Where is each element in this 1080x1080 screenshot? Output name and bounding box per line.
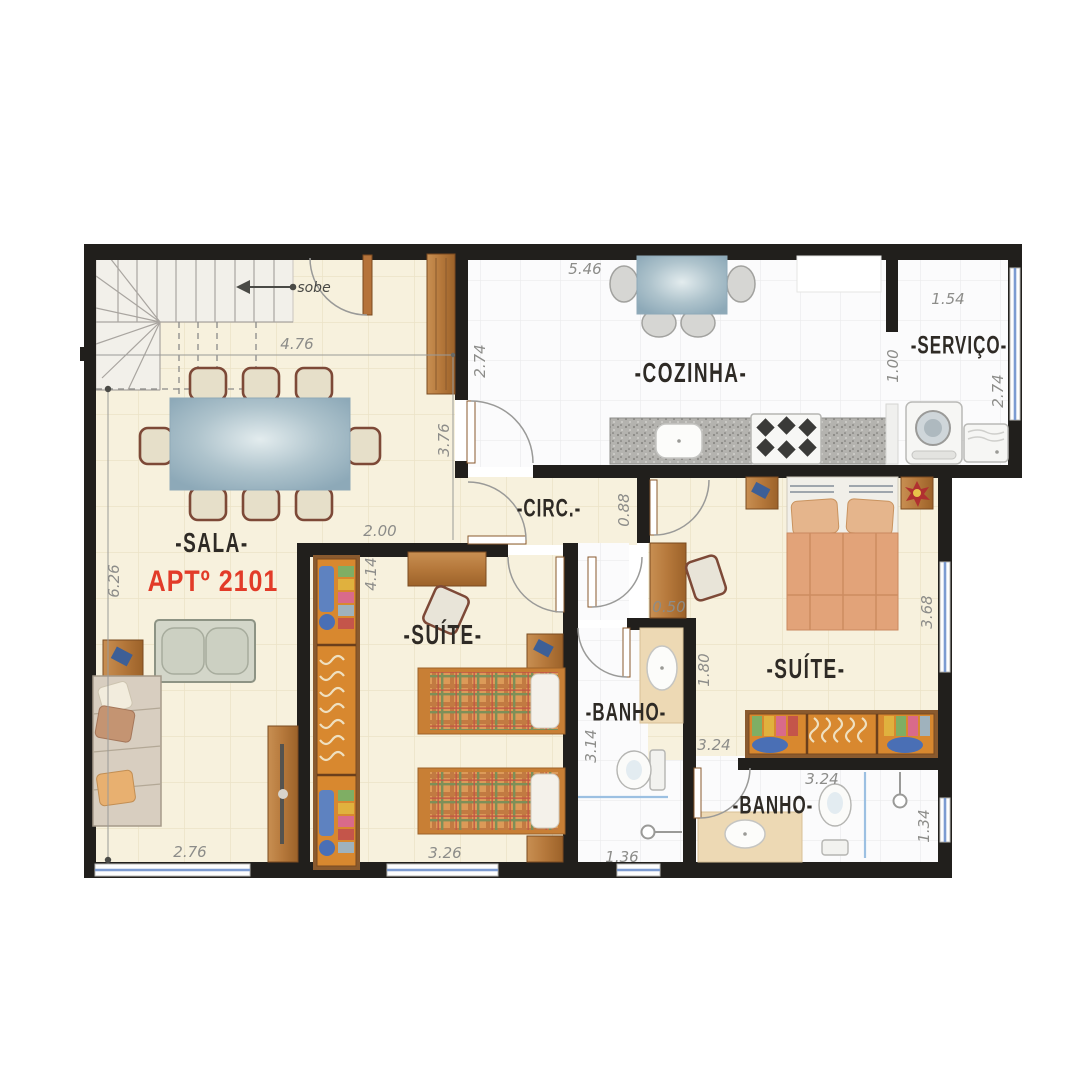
stove xyxy=(751,414,821,464)
kitchen-counter xyxy=(610,414,886,464)
window-suite2 xyxy=(940,562,950,672)
window-banho2 xyxy=(940,798,950,842)
toilet xyxy=(819,784,851,855)
room-label-suite2: -SUÍTE- xyxy=(766,655,845,687)
pillow xyxy=(94,705,135,743)
dim-cozinha-left-height: 2.74 xyxy=(471,344,489,377)
room-label-servico: -SERVIÇO- xyxy=(911,332,1008,361)
dim-cozinha-right-height: 1.00 xyxy=(884,349,902,382)
single-bed xyxy=(418,768,565,834)
dim-suite1-bottom-width: 3.26 xyxy=(428,844,461,862)
tv-rack xyxy=(268,726,298,862)
dim-suite2-right-height: 3.68 xyxy=(918,595,936,628)
servico-divider xyxy=(886,404,898,464)
suite1-side-table xyxy=(527,836,563,862)
wall-kitchen-servico xyxy=(886,244,898,332)
room-label-sala: -SALA- xyxy=(175,529,248,561)
room-label-banho1: -BANHO- xyxy=(586,699,667,728)
apartment-number-label: APTº 2101 xyxy=(148,565,279,600)
kitchen-cabinet xyxy=(797,256,881,292)
pillow xyxy=(791,498,839,535)
chaise-sofa xyxy=(93,676,161,826)
side-table xyxy=(103,640,143,678)
room-label-banho2: -BANHO- xyxy=(733,792,814,821)
dim-sala-top-width: 4.76 xyxy=(280,335,313,353)
laundry-tub xyxy=(964,424,1008,462)
wall-left-nub xyxy=(80,347,96,361)
wall-sala-suite1 xyxy=(297,543,310,878)
dim-banho1-bottom-width: 1.36 xyxy=(605,848,638,866)
dim-suite1-top-width: 2.00 xyxy=(363,522,396,540)
wall-sala-kitchen-pillar xyxy=(455,461,468,478)
washing-machine xyxy=(906,402,962,464)
tall-cabinet xyxy=(427,254,455,394)
window-servico xyxy=(1010,268,1020,420)
suite2-nightstand xyxy=(901,477,933,509)
dim-suite2-desk-depth: 0.50 xyxy=(652,598,685,616)
dim-banho2-right-height: 1.34 xyxy=(915,809,933,842)
dim-circ-height: 0.88 xyxy=(615,493,633,526)
wall-circ-suite2 xyxy=(637,465,650,543)
floor-plan-canvas: sobe -SALA- APTº 2101 -COZINHA- -SERVIÇO… xyxy=(0,0,1080,1080)
suite2-wardrobe xyxy=(745,710,938,758)
room-label-suite1: -SUÍTE- xyxy=(403,621,482,653)
window-sala xyxy=(95,864,250,876)
dim-suite1-left-height: 4.14 xyxy=(362,557,380,590)
pillow xyxy=(531,674,559,728)
stairs-direction-label: sobe xyxy=(297,280,330,296)
window-suite1 xyxy=(387,864,498,876)
wall-suite2-banho2 xyxy=(738,758,952,770)
wall-kitchen-bottom xyxy=(533,465,1022,478)
suite1-nightstand xyxy=(527,634,563,668)
room-label-circ: -CIRC.- xyxy=(517,495,582,524)
dim-sala-bottom-width: 2.76 xyxy=(173,843,206,861)
dim-sala-right-height: 3.76 xyxy=(435,423,453,456)
floor-plan-drawing xyxy=(0,0,1080,1080)
pillow xyxy=(531,774,559,828)
dim-banho1-left-height: 3.14 xyxy=(582,729,600,762)
single-bed xyxy=(418,668,565,734)
sofa xyxy=(155,620,255,682)
dim-servico-top-width: 1.54 xyxy=(931,290,964,308)
double-bed xyxy=(787,477,898,630)
pillow xyxy=(846,498,894,535)
toilet xyxy=(617,750,665,790)
dim-cozinha-top-width: 5.46 xyxy=(568,260,601,278)
dining-table xyxy=(170,398,350,490)
dim-sala-left-height: 6.26 xyxy=(105,564,123,597)
suite2-nightstand xyxy=(746,477,778,509)
kitchen-table xyxy=(637,256,727,314)
dim-banho2-top-width: 3.24 xyxy=(805,770,838,788)
vestibule-floor xyxy=(577,543,629,620)
room-label-cozinha: -COZINHA- xyxy=(635,359,748,391)
dim-suite2-left-height: 1.80 xyxy=(695,653,713,686)
pillow xyxy=(96,770,136,807)
dim-suite2-bottom-width: 3.24 xyxy=(697,736,730,754)
suite1-wardrobe xyxy=(313,555,360,870)
wall-sala-kitchen xyxy=(455,244,468,400)
dim-servico-right-height: 2.74 xyxy=(989,374,1007,407)
